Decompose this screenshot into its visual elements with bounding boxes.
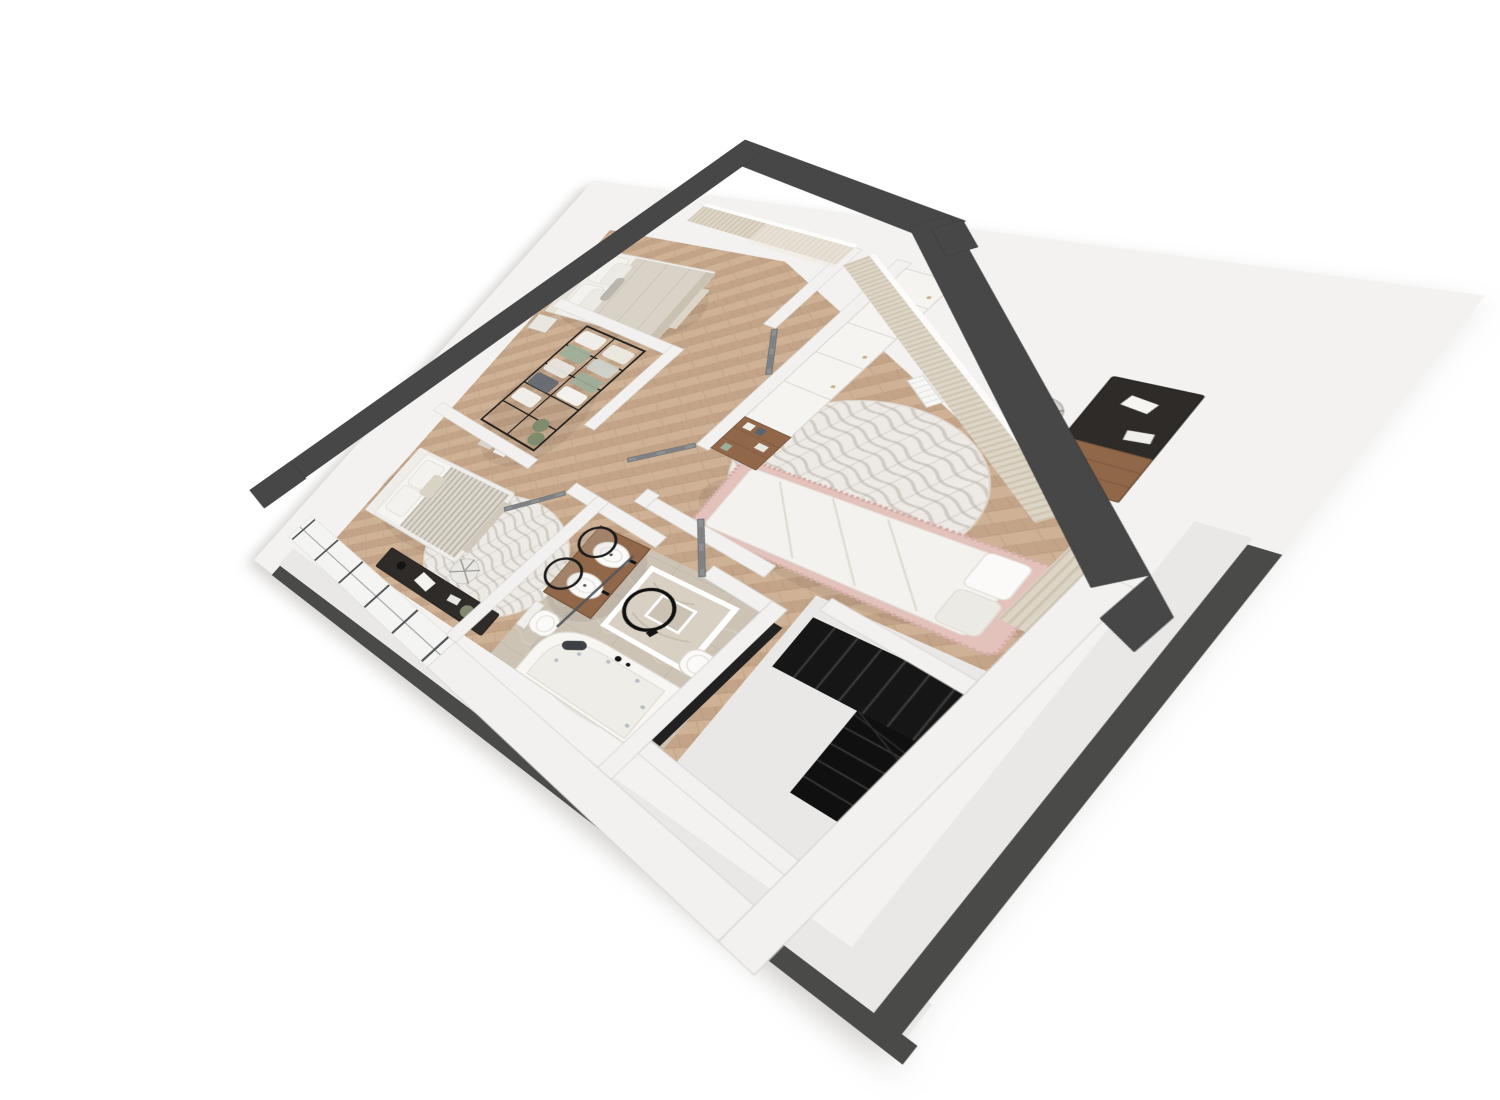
floor-plan-scene xyxy=(0,0,1500,1064)
wall-corner-step xyxy=(250,461,306,508)
bevel-wall xyxy=(720,209,1382,603)
wall-notch xyxy=(913,215,997,261)
